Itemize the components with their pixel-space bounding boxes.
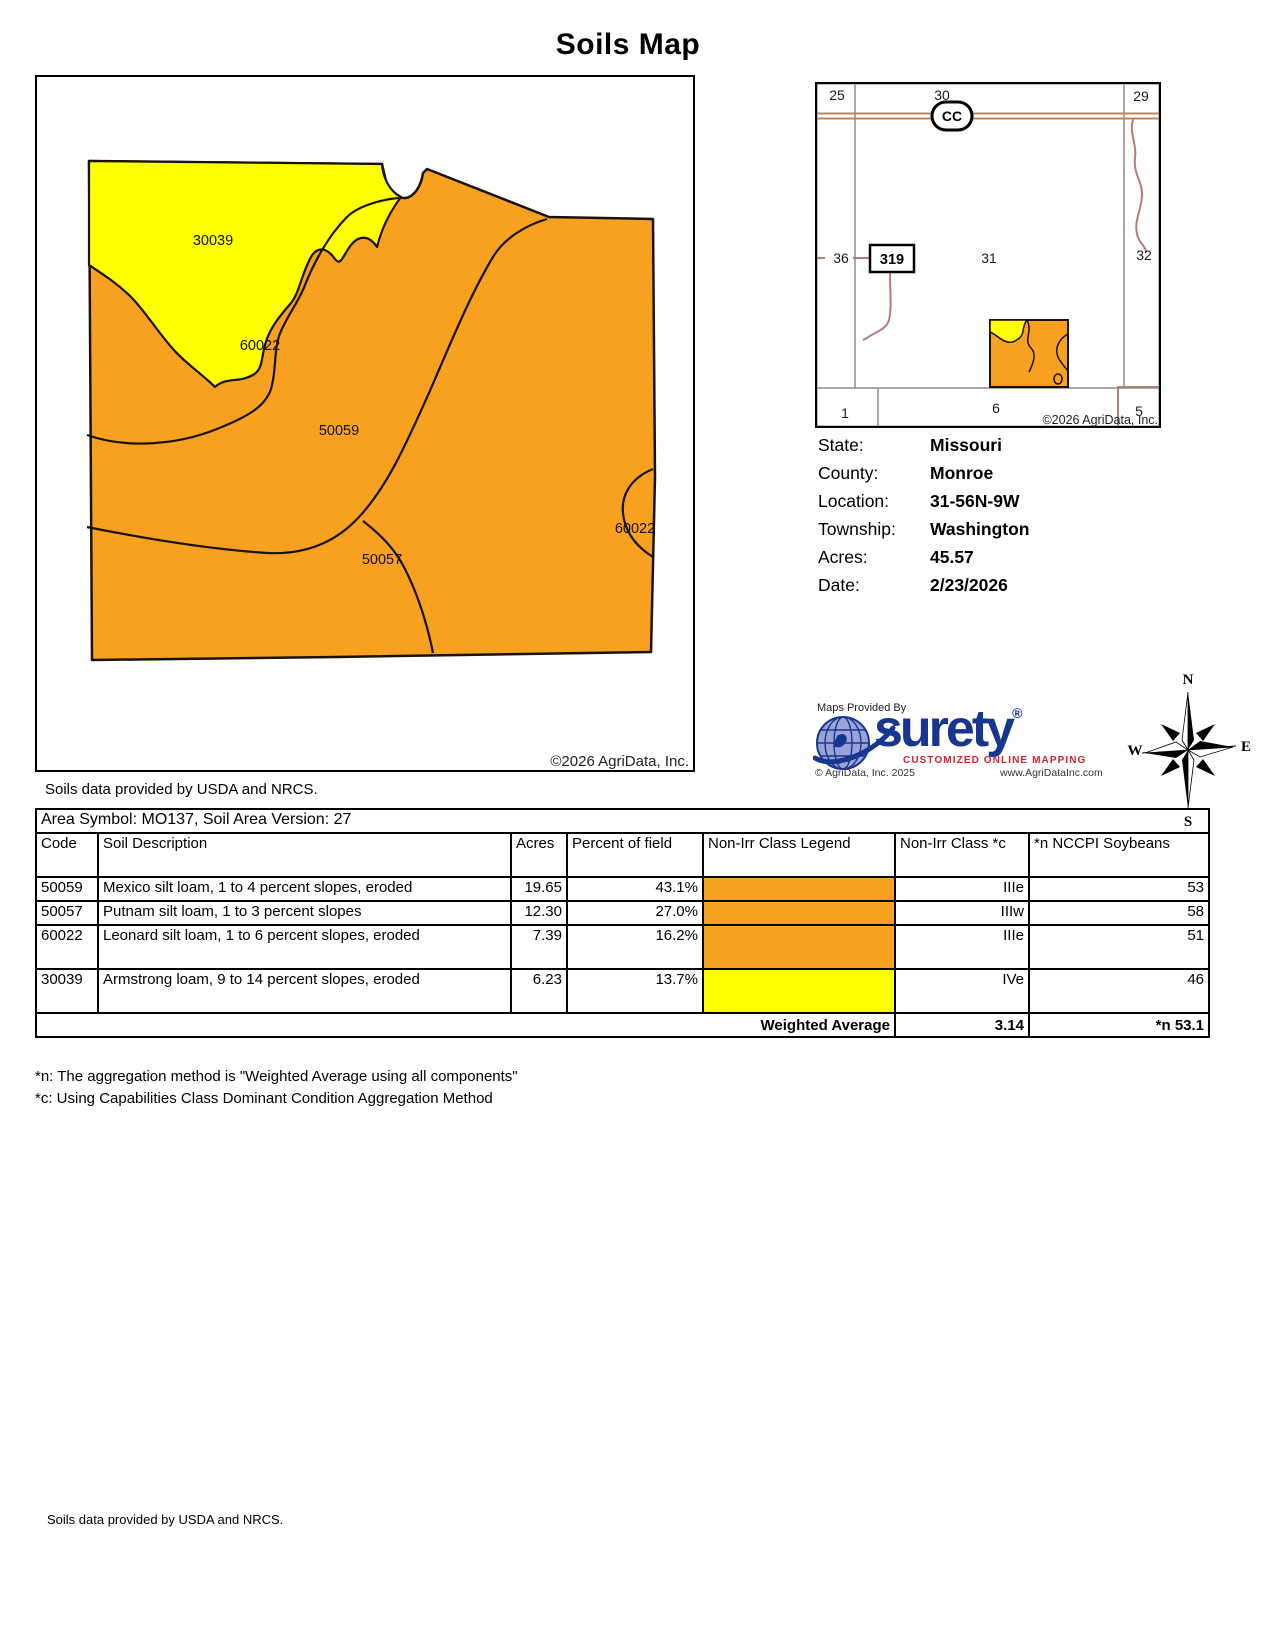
legend-swatch	[703, 877, 895, 901]
info-row-location: Location: 31-56N-9W	[818, 491, 1178, 519]
col-header-acres: Acres	[511, 833, 567, 877]
cell-code: 30039	[36, 969, 98, 1013]
table-row: 60022 Leonard silt loam, 1 to 6 percent …	[36, 925, 1209, 969]
cell-nonirr-class: IIIe	[895, 925, 1029, 969]
compass-east: E	[1241, 739, 1251, 755]
plat-map: CC 319 25 30 29 36 31 32 1 6 5 ©2026 Agr…	[815, 82, 1161, 428]
surety-tagline: CUSTOMIZED ONLINE MAPPING	[903, 755, 1086, 766]
compass-rose: N W E S	[1125, 668, 1255, 830]
info-row-acres: Acres: 45.57	[818, 547, 1178, 575]
page-footer-attribution: Soils data provided by USDA and NRCS.	[47, 1512, 283, 1527]
footnote-n: *n: The aggregation method is "Weighted …	[35, 1068, 518, 1085]
soil-label-30039: 30039	[193, 233, 233, 249]
weighted-average-row: Weighted Average 3.14 *n 53.1	[36, 1013, 1209, 1037]
soil-label-60022: 60022	[240, 338, 280, 354]
info-row-date: Date: 2/23/2026	[818, 575, 1178, 603]
col-header-description: Soil Description	[98, 833, 511, 877]
compass-star	[1145, 692, 1233, 808]
page-title: Soils Map	[468, 28, 788, 62]
logo-website: www.AgriDataInc.com	[1000, 767, 1103, 779]
section-29: 29	[1133, 88, 1149, 104]
area-symbol-line: Area Symbol: MO137, Soil Area Version: 2…	[36, 809, 1209, 833]
cell-acres: 12.30	[511, 901, 567, 925]
cell-code: 50057	[36, 901, 98, 925]
soil-label-50059: 50059	[319, 423, 359, 439]
soil-map: 30039 60022 50059 50057 60022	[37, 77, 693, 770]
section-31: 31	[981, 250, 997, 266]
surety-name: surety	[874, 700, 1012, 758]
info-value: Washington	[930, 519, 1029, 540]
info-label: Date:	[818, 575, 860, 595]
soils-table: Area Symbol: MO137, Soil Area Version: 2…	[35, 808, 1210, 1038]
cell-description: Mexico silt loam, 1 to 4 percent slopes,…	[98, 877, 511, 901]
cell-percent: 27.0%	[567, 901, 703, 925]
info-label: Location:	[818, 491, 889, 511]
cell-percent: 13.7%	[567, 969, 703, 1013]
table-row: 30039 Armstrong loam, 9 to 14 percent sl…	[36, 969, 1209, 1013]
info-label: County:	[818, 463, 878, 483]
cell-nccpi: 51	[1029, 925, 1209, 969]
legend-swatch	[703, 969, 895, 1013]
table-row: 50057 Putnam silt loam, 1 to 3 percent s…	[36, 901, 1209, 925]
soil-map-attribution: Soils data provided by USDA and NRCS.	[45, 781, 318, 798]
table-header-row: Code Soil Description Acres Percent of f…	[36, 833, 1209, 877]
cell-nccpi: 46	[1029, 969, 1209, 1013]
plat-copyright: ©2026 AgriData, Inc.	[1042, 413, 1158, 427]
cell-code: 50059	[36, 877, 98, 901]
compass-west: W	[1128, 743, 1143, 759]
cell-nonirr-class: IVe	[895, 969, 1029, 1013]
soil-label-60022-right: 60022	[615, 521, 655, 537]
info-value: 31-56N-9W	[930, 491, 1019, 512]
info-row-county: County: Monroe	[818, 463, 1178, 491]
section-36: 36	[833, 250, 849, 266]
compass-north: N	[1183, 672, 1194, 688]
col-header-legend: Non-Irr Class Legend	[703, 833, 895, 877]
road-sign-label: 319	[880, 252, 904, 268]
weighted-average-nccpi: *n 53.1	[1029, 1013, 1209, 1037]
table-row: 50059 Mexico silt loam, 1 to 4 percent s…	[36, 877, 1209, 901]
legend-swatch	[703, 901, 895, 925]
highway-shield-label: CC	[942, 108, 962, 124]
section-25: 25	[829, 87, 845, 103]
soil-map-panel: 30039 60022 50059 50057 60022 ©2026 Agri…	[35, 75, 695, 772]
cell-nccpi: 53	[1029, 877, 1209, 901]
cell-acres: 7.39	[511, 925, 567, 969]
cell-acres: 19.65	[511, 877, 567, 901]
col-header-nonirr-class: Non-Irr Class *c	[895, 833, 1029, 877]
info-value: Monroe	[930, 463, 993, 484]
col-header-code: Code	[36, 833, 98, 877]
registered-mark: ®	[1012, 705, 1022, 721]
info-row-township: Township: Washington	[818, 519, 1178, 547]
weighted-average-class: 3.14	[895, 1013, 1029, 1037]
info-value: Missouri	[930, 435, 1002, 456]
soil-map-copyright: ©2026 AgriData, Inc.	[550, 753, 689, 770]
col-header-nccpi: *n NCCPI Soybeans	[1029, 833, 1209, 877]
section-32: 32	[1136, 247, 1152, 263]
cell-nonirr-class: IIIe	[895, 877, 1029, 901]
info-label: State:	[818, 435, 864, 455]
info-value: 45.57	[930, 547, 974, 568]
cell-description: Leonard silt loam, 1 to 6 percent slopes…	[98, 925, 511, 969]
section-30: 30	[934, 87, 950, 103]
cell-code: 60022	[36, 925, 98, 969]
cell-nccpi: 58	[1029, 901, 1209, 925]
weighted-average-label: Weighted Average	[36, 1013, 895, 1037]
cell-nonirr-class: IIIw	[895, 901, 1029, 925]
cell-acres: 6.23	[511, 969, 567, 1013]
info-label: Township:	[818, 519, 896, 539]
col-header-percent: Percent of field	[567, 833, 703, 877]
legend-swatch	[703, 925, 895, 969]
section-1: 1	[841, 405, 849, 421]
info-row-state: State: Missouri	[818, 435, 1178, 463]
cell-percent: 16.2%	[567, 925, 703, 969]
section-6: 6	[992, 400, 1000, 416]
cell-percent: 43.1%	[567, 877, 703, 901]
info-label: Acres:	[818, 547, 868, 567]
info-value: 2/23/2026	[930, 575, 1008, 596]
cell-description: Armstrong loam, 9 to 14 percent slopes, …	[98, 969, 511, 1013]
cell-description: Putnam silt loam, 1 to 3 percent slopes	[98, 901, 511, 925]
surety-wordmark: surety®	[874, 702, 1022, 757]
soil-label-50057: 50057	[362, 552, 402, 568]
logo-copyright: © AgriData, Inc. 2025	[815, 767, 915, 779]
footnote-c: *c: Using Capabilities Class Dominant Co…	[35, 1090, 493, 1107]
